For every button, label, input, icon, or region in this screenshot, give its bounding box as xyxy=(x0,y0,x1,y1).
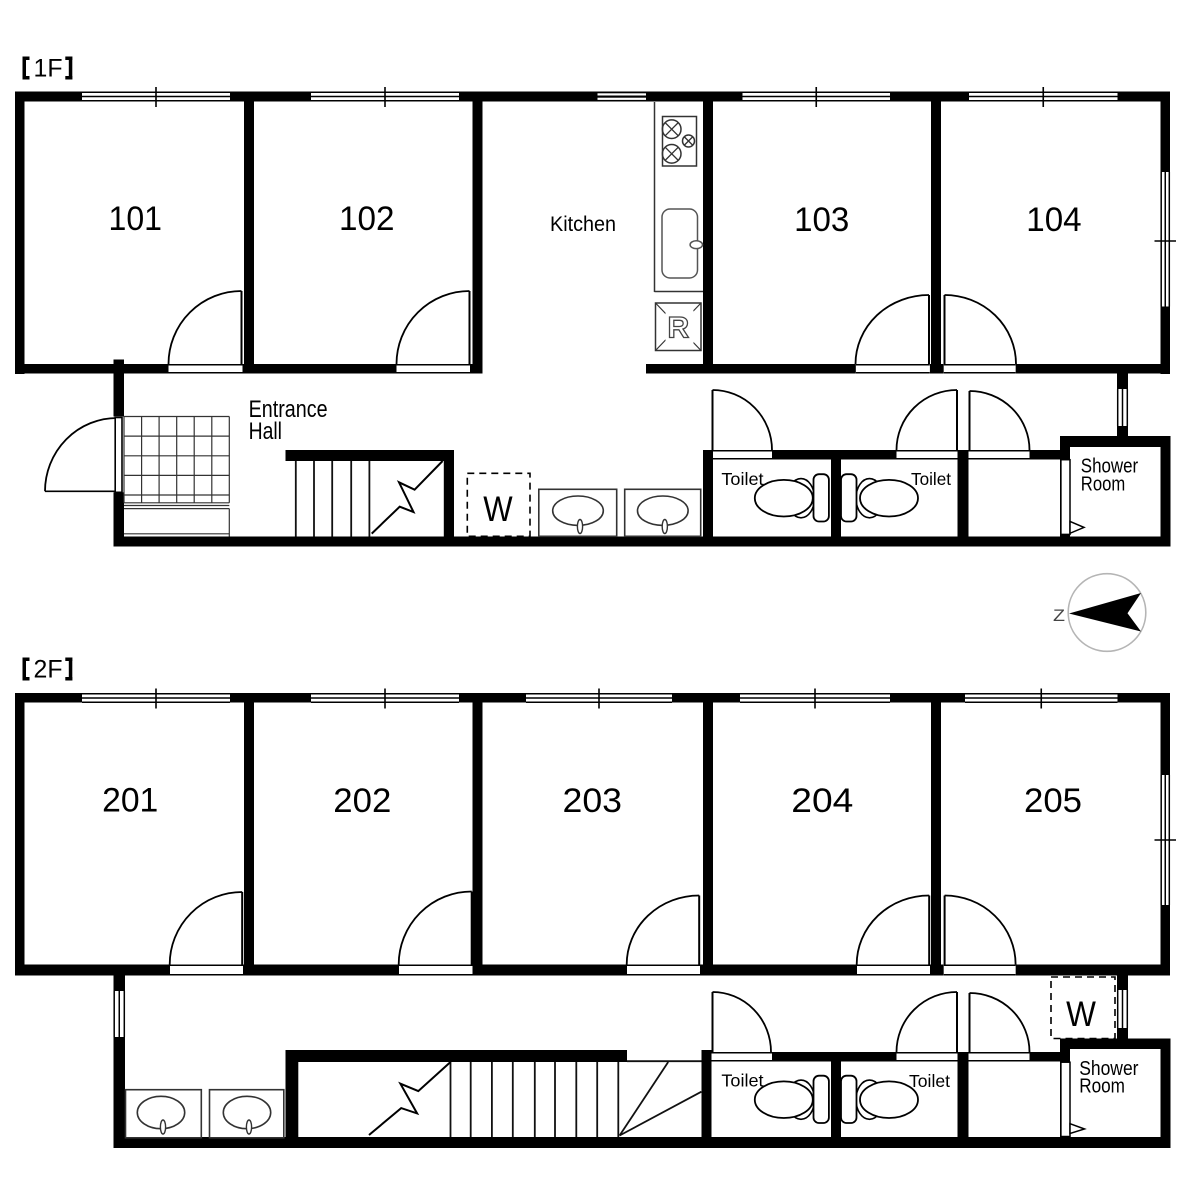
svg-text:R: R xyxy=(667,312,689,345)
svg-text:203: 203 xyxy=(563,782,623,820)
svg-text:W: W xyxy=(1066,995,1096,1034)
svg-text:205: 205 xyxy=(1024,782,1082,820)
svg-text:Toilet: Toilet xyxy=(721,469,763,489)
svg-text:Toilet: Toilet xyxy=(911,469,951,489)
svg-text:W: W xyxy=(483,490,512,529)
svg-text:201: 201 xyxy=(102,782,158,820)
svg-text:Toilet: Toilet xyxy=(909,1071,950,1091)
svg-text:1F: 1F xyxy=(34,55,63,83)
svg-text:102: 102 xyxy=(339,200,395,238)
svg-text:104: 104 xyxy=(1026,201,1081,239)
svg-text:Hall: Hall xyxy=(249,418,282,445)
svg-text:101: 101 xyxy=(109,200,163,238)
svg-text:103: 103 xyxy=(794,201,849,239)
svg-text:Kitchen: Kitchen xyxy=(550,213,616,236)
svg-text:Room: Room xyxy=(1081,474,1125,496)
svg-text:Toilet: Toilet xyxy=(721,1071,763,1091)
svg-text:204: 204 xyxy=(791,782,853,820)
svg-text:2F: 2F xyxy=(34,656,63,684)
svg-text:Room: Room xyxy=(1079,1076,1125,1098)
svg-text:202: 202 xyxy=(333,782,391,820)
svg-text:Z: Z xyxy=(1053,606,1065,625)
